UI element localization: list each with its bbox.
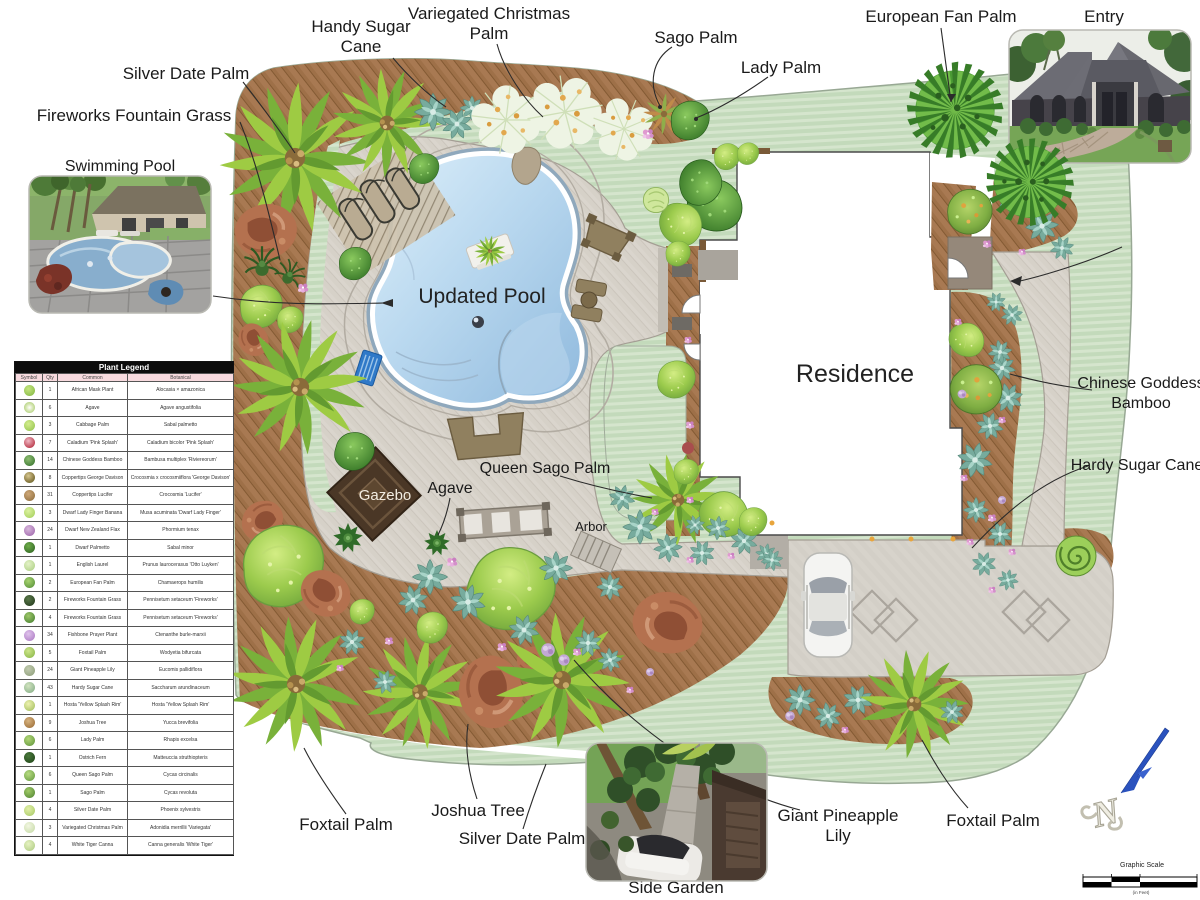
svg-text:Graphic Scale: Graphic Scale [1120, 862, 1164, 869]
svg-text:Queen Sago Palm: Queen Sago Palm [480, 460, 611, 477]
svg-text:Lady Palm: Lady Palm [741, 58, 821, 77]
svg-text:Joshua Tree: Joshua Tree [431, 801, 525, 820]
svg-text:Variegated Christmas: Variegated Christmas [408, 4, 570, 23]
svg-text:Silver Date Palm: Silver Date Palm [459, 829, 586, 848]
svg-text:Foxtail Palm: Foxtail Palm [299, 815, 393, 834]
svg-text:Lily: Lily [825, 826, 851, 845]
svg-text:Sago Palm: Sago Palm [654, 28, 737, 47]
svg-text:European Fan Palm: European Fan Palm [865, 7, 1016, 26]
svg-text:Foxtail Palm: Foxtail Palm [946, 811, 1040, 830]
svg-text:Fireworks Fountain Grass: Fireworks Fountain Grass [37, 106, 232, 125]
svg-text:Cane: Cane [341, 37, 382, 56]
svg-text:Gazebo: Gazebo [359, 487, 412, 504]
svg-text:(in Feet): (in Feet) [1133, 890, 1150, 895]
svg-text:Palm: Palm [470, 24, 509, 43]
svg-text:Swimming Pool: Swimming Pool [65, 158, 175, 175]
svg-text:Chinese Goddess: Chinese Goddess [1077, 375, 1200, 392]
svg-text:Entry: Entry [1084, 7, 1124, 26]
svg-text:Bamboo: Bamboo [1111, 395, 1171, 412]
svg-text:Updated Pool: Updated Pool [418, 285, 545, 308]
svg-text:Residence: Residence [796, 360, 914, 388]
svg-text:Giant Pineapple: Giant Pineapple [778, 806, 899, 825]
svg-text:Silver Date Palm: Silver Date Palm [123, 64, 250, 83]
svg-text:Arbor: Arbor [575, 519, 607, 534]
svg-text:Agave: Agave [427, 480, 472, 497]
svg-text:Hardy Sugar Cane: Hardy Sugar Cane [1071, 457, 1200, 474]
svg-text:Handy Sugar: Handy Sugar [311, 17, 411, 36]
